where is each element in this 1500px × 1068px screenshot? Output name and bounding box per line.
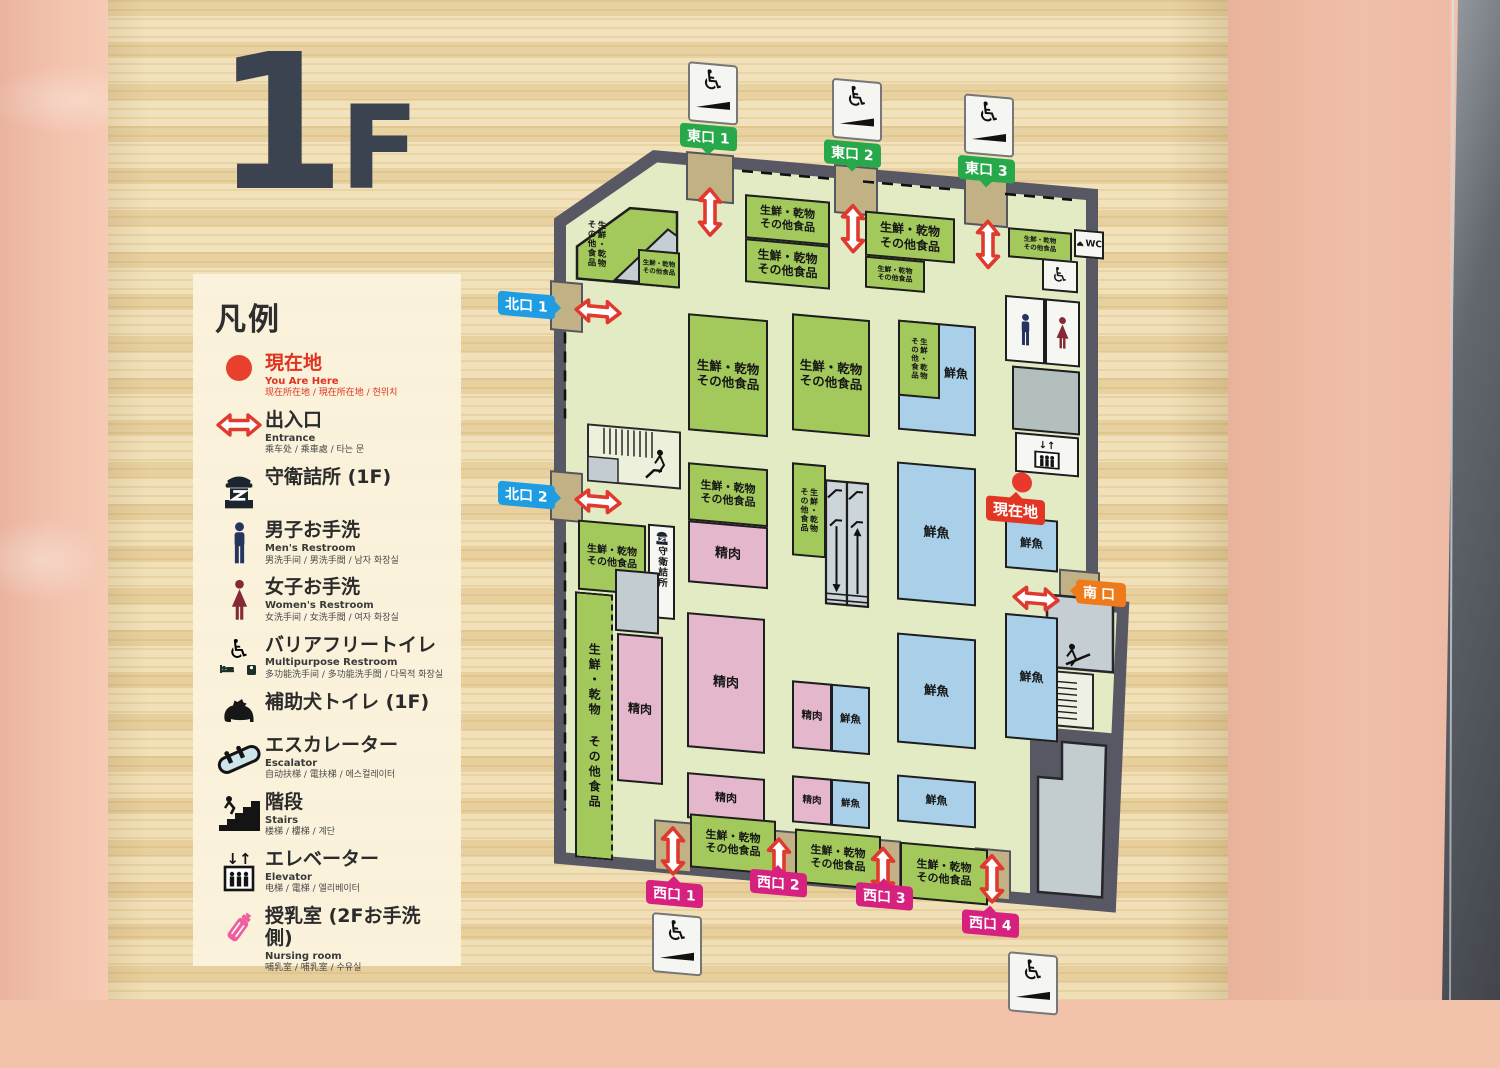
legend-sub-intl: 电梯 / 電梯 / 엘리베이터 <box>265 884 445 895</box>
zone-fish: 鮮魚 <box>897 461 976 606</box>
legend-item-escalator: エスカレーター Escalator 自动扶梯 / 電扶梯 / 에스컬레이터 <box>213 735 445 781</box>
woman-icon <box>213 577 265 621</box>
legend-sub-en: You Are Here <box>265 376 445 389</box>
zone-fresh-vertical: 生鮮・乾物 その他食品 <box>792 462 826 558</box>
zone-fish: 鮮魚 <box>897 774 976 828</box>
legend-label: 男子お手洗 <box>265 520 445 542</box>
zone-fresh-small: 生鮮・乾物 その他食品 <box>865 256 925 293</box>
zone-fresh: 生鮮・乾物 その他食品 <box>792 313 870 437</box>
legend-item-nursing-room: 授乳室 (2Fお手洗側) Nursing room 哺乳室 / 哺乳室 / 수유… <box>213 906 445 974</box>
legend-label: 守衛詰所 (1F) <box>265 467 445 489</box>
zone-fresh: 生鮮・乾物 その他食品 <box>795 829 881 891</box>
zone-fish: 鮮魚 <box>897 632 976 749</box>
zone-fresh: 生鮮・乾物 その他食品 <box>745 238 830 289</box>
legend-item-guard-station: 守衛詰所 (1F) <box>213 467 445 509</box>
tag-north-entrance-2: 北口 2 <box>498 481 555 510</box>
tag-you-are-here: 現在地 <box>986 495 1045 525</box>
tag-west-entrance-1: 西口 1 <box>646 880 703 909</box>
legend-label: バリアフリートイレ <box>265 635 445 657</box>
pink-wall-right <box>1228 0 1450 1000</box>
stairs-icon <box>213 792 265 832</box>
nursing-bottle-icon <box>213 906 265 948</box>
wc-label: WC <box>1085 239 1102 251</box>
legend-sub-en: Women's Restroom <box>265 600 445 613</box>
pink-wall-left <box>0 0 108 1000</box>
tag-south-entrance: 南口 <box>1076 579 1126 607</box>
legend-sub-en: Entrance <box>265 433 445 446</box>
zone-fresh-small: 生鮮・乾物 その他食品 <box>1008 227 1072 263</box>
floor-map: 生鮮・乾物 その他食品 生鮮・乾物 その他食品 生鮮・乾物 その他食品 生鮮・乾… <box>560 150 1200 1036</box>
ramp-icon <box>1015 986 1051 1001</box>
legend-label: 階段 <box>265 792 445 814</box>
legend-label: エレベーター <box>265 849 445 871</box>
zone-meat: 精肉 <box>688 520 768 589</box>
ramp-icon <box>839 113 875 128</box>
you-are-here-icon <box>213 353 265 381</box>
wheelchair-icon: ♿ <box>213 635 265 677</box>
zone-fresh-small: 生鮮・乾物 その他食品 <box>638 249 680 289</box>
tag-west-entrance-2: 西口 2 <box>750 869 807 898</box>
legend-item-you-are-here: 現在地 You Are Here 现在所在地 / 現在所在地 / 현위치 <box>213 353 445 399</box>
legend-sub-intl: 楼梯 / 樓梯 / 계단 <box>265 827 445 838</box>
entrance-arrow-east-1 <box>697 186 723 242</box>
legend-label: 出入口 <box>265 410 445 432</box>
woman-icon <box>1055 316 1070 349</box>
zone-fresh: 生鮮・乾物 その他食品 <box>690 813 776 875</box>
legend-item-multipurpose-restroom: ♿ バリアフリートイレ Multipurpose Restroom 多功能洗手间… <box>213 635 445 681</box>
legend-item-womens-restroom: 女子お手洗 Women's Restroom 女洗手间 / 女洗手間 / 여자 … <box>213 577 445 623</box>
escalator-shaft <box>826 480 868 607</box>
dog-icon <box>213 692 265 724</box>
wheelchair-icon: ♿ <box>1051 263 1069 288</box>
west-gray-room <box>615 569 659 635</box>
ramp-icon <box>971 128 1007 143</box>
entrance-arrow-east-3 <box>975 218 1001 274</box>
mens-room <box>1005 295 1045 364</box>
wheelchair-ramp-sign-west-4: ♿ <box>1008 951 1058 1015</box>
stairs-northwest <box>588 424 680 488</box>
legend-sub-intl: 乘车处 / 乘車處 / 타는 문 <box>265 445 445 456</box>
ramp-icon <box>695 96 731 111</box>
legend-item-stairs: 階段 Stairs 楼梯 / 樓梯 / 계단 <box>213 792 445 838</box>
zone-fish-label: 鮮魚 <box>944 366 968 382</box>
legend-sub-intl: 男洗手间 / 男洗手間 / 남자 화장실 <box>265 556 445 567</box>
legend-sub-en: Stairs <box>265 815 445 828</box>
guard-icon <box>213 467 265 509</box>
entrance-arrow-west-4 <box>979 853 1005 909</box>
zone-fresh: 生鮮・乾物 その他食品 <box>865 211 955 264</box>
wheelchair-ramp-sign-west-1: ♿ <box>652 912 702 976</box>
legend-item-entrance: 出入口 Entrance 乘车处 / 乘車處 / 타는 문 <box>213 410 445 456</box>
guard-icon <box>655 528 669 545</box>
floor-title: 1 F <box>215 30 419 218</box>
zone-fish-mixed: 生鮮・乾物 その他食品 鮮魚 <box>898 320 976 437</box>
zone-fresh-nw-label: 生鮮・乾物 その他食品 <box>580 210 612 279</box>
wheelchair-icon: ♿ <box>701 64 725 99</box>
tag-east-entrance-3: 東口 3 <box>958 155 1015 184</box>
legend-label: 補助犬トイレ (1F) <box>265 692 445 714</box>
photo-of-floor-sign: { "floor_title": {"big": "1", "small": "… <box>0 0 1500 1000</box>
zone-fresh: 生鮮・乾物 その他食品 <box>745 194 830 245</box>
wheelchair-ramp-sign-east-1: ♿ <box>688 61 738 125</box>
tag-west-entrance-3: 西口 3 <box>856 882 913 911</box>
elevator-icon: ↓↑ <box>213 849 265 893</box>
wheelchair-icon: ♿ <box>845 81 869 116</box>
floor-number: 1 <box>215 30 340 218</box>
zone-meat: 精肉 <box>687 612 765 754</box>
elevator-icon <box>1034 450 1060 469</box>
entrance-arrow-south <box>1012 583 1060 619</box>
zone-fish: 鮮魚 <box>831 779 870 829</box>
entrance-arrow-north-1 <box>574 295 622 331</box>
tag-west-entrance-4: 西口 4 <box>962 909 1019 938</box>
tag-east-entrance-1: 東口 1 <box>680 122 737 151</box>
legend-sub-intl: 女洗手间 / 女洗手間 / 여자 화장실 <box>265 613 445 624</box>
legend-panel: 凡例 現在地 You Are Here 现在所在地 / 現在所在地 / 현위치 … <box>193 274 461 966</box>
zone-fresh: 生鮮・乾物 その他食品 <box>688 313 768 437</box>
legend-item-service-dog-toilet: 補助犬トイレ (1F) <box>213 692 445 724</box>
ramp-icon <box>659 947 695 962</box>
man-icon <box>1019 313 1032 346</box>
legend-sub-intl: 自动扶梯 / 電扶梯 / 에스컬레이터 <box>265 770 445 781</box>
wheelchair-icon: ♿ <box>977 96 1001 131</box>
wheelchair-icon: ♿ <box>665 915 689 950</box>
zone-fresh-vertical: 生鮮・乾物 その他食品 <box>898 319 940 399</box>
entrance-arrow-east-2 <box>840 202 866 258</box>
dog-icon <box>1076 238 1084 249</box>
accessible-toilet-room: ♿ <box>1042 258 1078 293</box>
legend-item-mens-restroom: 男子お手洗 Men's Restroom 男洗手间 / 男洗手間 / 남자 화장… <box>213 520 445 566</box>
zone-meat: 精肉 <box>792 680 832 751</box>
zone-fresh: 生鮮・乾物 その他食品 <box>688 462 768 527</box>
legend-sub-en: Multipurpose Restroom <box>265 657 445 670</box>
legend-heading: 凡例 <box>215 294 445 339</box>
zone-fresh-west-strip: 生鮮・乾物 その他食品 <box>575 591 613 860</box>
tag-north-entrance-1: 北口 1 <box>498 291 555 320</box>
entrance-arrow-west-1 <box>660 825 686 881</box>
legend-label: 現在地 <box>265 353 445 375</box>
service-room <box>1012 366 1080 436</box>
entrance-arrow-icon <box>213 410 265 438</box>
zone-meat: 精肉 <box>792 775 832 825</box>
zone-fish: 鮮魚 <box>1005 613 1058 743</box>
womens-room <box>1045 298 1080 367</box>
svg-text:↓↑: ↓↑ <box>226 851 251 868</box>
wheelchair-ramp-sign-east-3: ♿ <box>964 93 1014 157</box>
zone-meat: 精肉 <box>617 633 663 785</box>
wheelchair-icon: ♿ <box>1021 954 1045 989</box>
legend-item-elevator: ↓↑ エレベーター Elevator 电梯 / 電梯 / 엘리베이터 <box>213 849 445 895</box>
legend-sub-en: Escalator <box>265 758 445 771</box>
zone-fresh: 生鮮・乾物 その他食品 <box>900 842 988 906</box>
elevator-room: ↓↑ <box>1015 432 1079 478</box>
legend-sub-intl: 多功能洗手间 / 多功能洗手間 / 다목적 화장실 <box>265 670 445 681</box>
dog-wc-room: WC <box>1074 229 1104 260</box>
legend-sub-intl: 哺乳室 / 哺乳室 / 수유실 <box>265 963 445 974</box>
legend-sub-en: Elevator <box>265 872 445 885</box>
legend-sub-en: Nursing room <box>265 951 445 964</box>
legend-sub-en: Men's Restroom <box>265 543 445 556</box>
man-icon <box>213 520 265 564</box>
legend-label: 授乳室 (2Fお手洗側) <box>265 906 445 950</box>
entrance-arrow-north-2 <box>574 485 622 521</box>
legend-label: エスカレーター <box>265 735 445 757</box>
tag-east-entrance-2: 東口 2 <box>824 139 881 168</box>
zone-fish: 鮮魚 <box>1005 516 1058 573</box>
zone-fish: 鮮魚 <box>831 684 870 755</box>
floor-letter: F <box>340 81 419 218</box>
legend-label: 女子お手洗 <box>265 577 445 599</box>
legend-sub-intl: 现在所在地 / 現在所在地 / 현위치 <box>265 388 445 399</box>
escalator-icon <box>213 735 265 777</box>
wheelchair-ramp-sign-east-2: ♿ <box>832 78 882 142</box>
